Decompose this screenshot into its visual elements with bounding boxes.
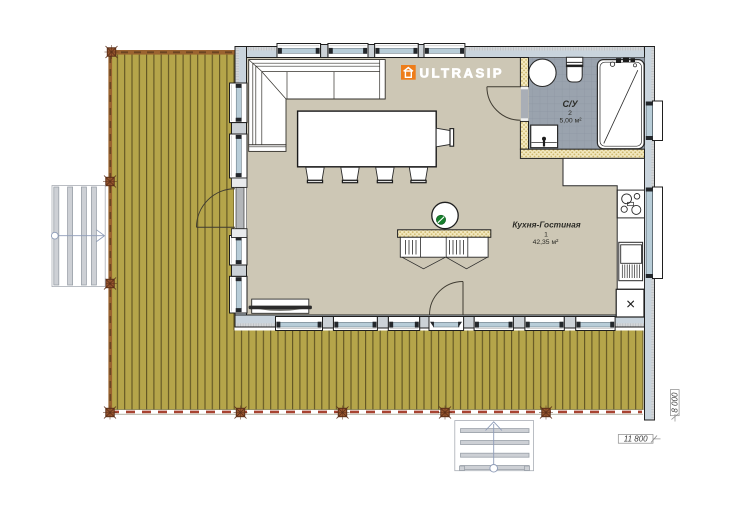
svg-text:С/У: С/У — [562, 99, 578, 109]
svg-text:2: 2 — [568, 110, 572, 117]
svg-text:42,35 м²: 42,35 м² — [533, 239, 560, 246]
svg-text:Кухня-Гостиная: Кухня-Гостиная — [512, 220, 580, 230]
svg-text:ULTRASIP: ULTRASIP — [420, 65, 505, 80]
svg-text:5,00 м²: 5,00 м² — [559, 118, 582, 125]
svg-text:8 000: 8 000 — [670, 392, 679, 413]
svg-text:1: 1 — [544, 232, 548, 239]
svg-text:11 800: 11 800 — [624, 435, 648, 444]
